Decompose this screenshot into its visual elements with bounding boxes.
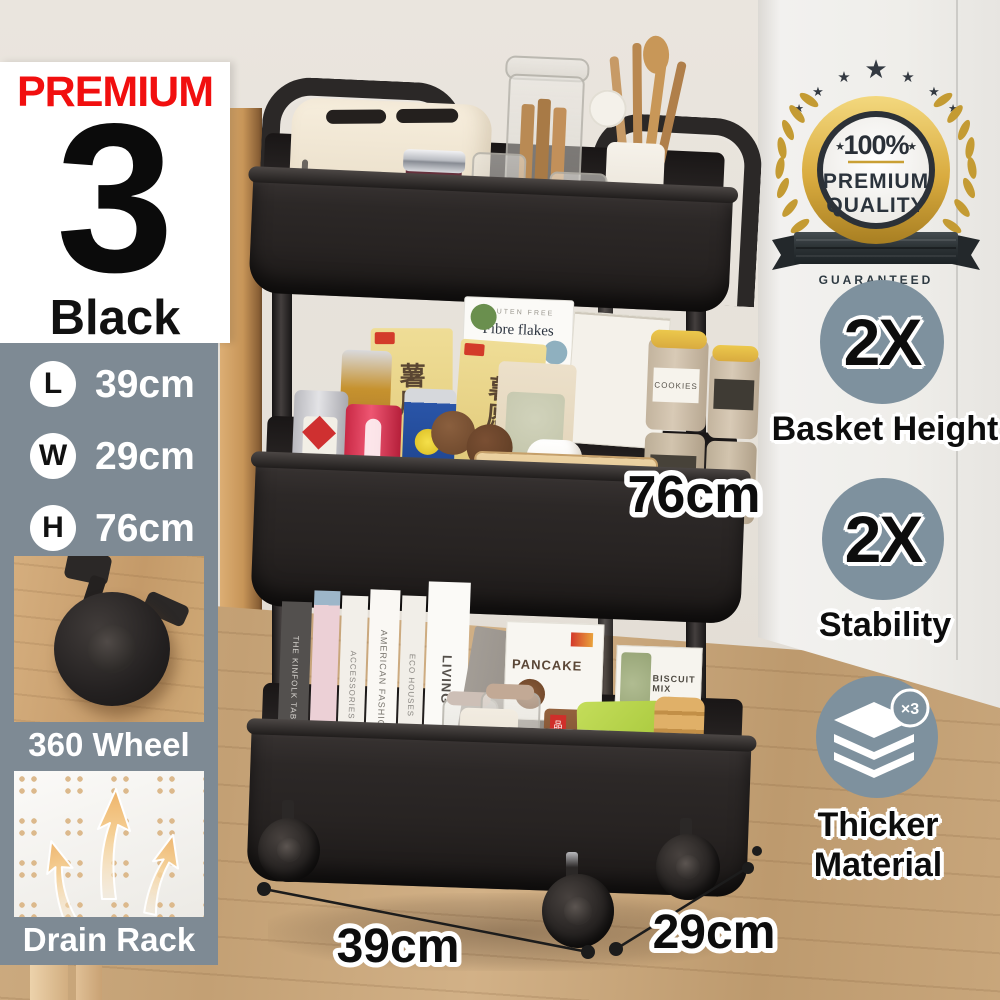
feature-stability-label: Stability: [762, 606, 1000, 645]
dimension-row-height: H 76cm: [0, 505, 218, 551]
badge-percent: 100%: [843, 130, 909, 160]
feature-stability-value: 2X: [845, 501, 922, 577]
arrow-up-icon: [142, 832, 184, 917]
length-value: 39cm: [95, 363, 195, 407]
tier-count: 3: [0, 92, 230, 304]
badge-premium: PREMIUM: [823, 170, 929, 193]
feature-stability-badge: 2X: [822, 478, 944, 600]
spec-panel: L 39cm W 29cm H 76cm 360 Wheel: [0, 343, 218, 965]
times3-label: ×3: [901, 701, 919, 718]
wheel-caption: 360 Wheel: [0, 726, 218, 764]
caster-wheel-left: [258, 818, 320, 882]
premium-quality-badge: ★ ★ ★ ★ ★ ★ ★: [762, 48, 990, 288]
drain-arrows: [14, 771, 204, 917]
tier-1: [244, 40, 755, 322]
badge-quality: QUALITY: [826, 194, 925, 217]
star-icon: ★: [864, 54, 887, 84]
feature-thicker-material-badge: ×3: [816, 676, 938, 798]
star-icon: ★: [837, 69, 850, 86]
drain-rack-photo: [14, 771, 204, 917]
feature-thicker-label-line1: Thicker: [762, 806, 994, 845]
star-icon: ★: [907, 141, 917, 153]
drain-caption: Drain Rack: [0, 921, 218, 959]
star-icon: ★: [901, 69, 914, 86]
width-badge: W: [30, 433, 76, 479]
layers-icon: ×3: [816, 676, 938, 798]
star-icon: ★: [928, 84, 940, 99]
dimension-row-length: L 39cm: [0, 361, 218, 407]
caster-wheel-icon: [54, 592, 170, 706]
length-badge: L: [30, 361, 76, 407]
color-name: Black: [0, 290, 230, 346]
feature-basket-height-value: 2X: [844, 304, 921, 380]
arrow-up-icon: [38, 837, 88, 917]
feature-thicker-label-line2: Material: [762, 846, 994, 885]
storage-tin: COOKIES: [645, 337, 708, 431]
feature-basket-height-label: Basket Height: [762, 410, 1000, 449]
dimension-row-width: W 29cm: [0, 433, 218, 479]
star-icon: ★: [812, 84, 824, 99]
tin-label: COOKIES: [652, 367, 699, 403]
width-value: 29cm: [95, 435, 195, 479]
storage-tin: [707, 353, 760, 440]
wheel-photo: [14, 556, 204, 722]
caster-wheel-right: [656, 834, 720, 900]
product-banner: GLUTEN FREE Fibre flakes 薯愿 薯愿 BISCUIT: [0, 0, 1000, 1000]
height-value: 76cm: [95, 507, 195, 551]
feature-basket-height-badge: 2X: [820, 280, 944, 404]
caster-wheel-front: [542, 874, 614, 948]
biscuit-mix-label: BISCUIT MIX: [652, 673, 701, 695]
arrow-up-icon: [98, 789, 130, 899]
promo-card: PREMIUM 3 Black: [0, 62, 230, 343]
pancake-box-label: PANCAKE: [512, 656, 583, 673]
height-badge: H: [30, 505, 76, 551]
